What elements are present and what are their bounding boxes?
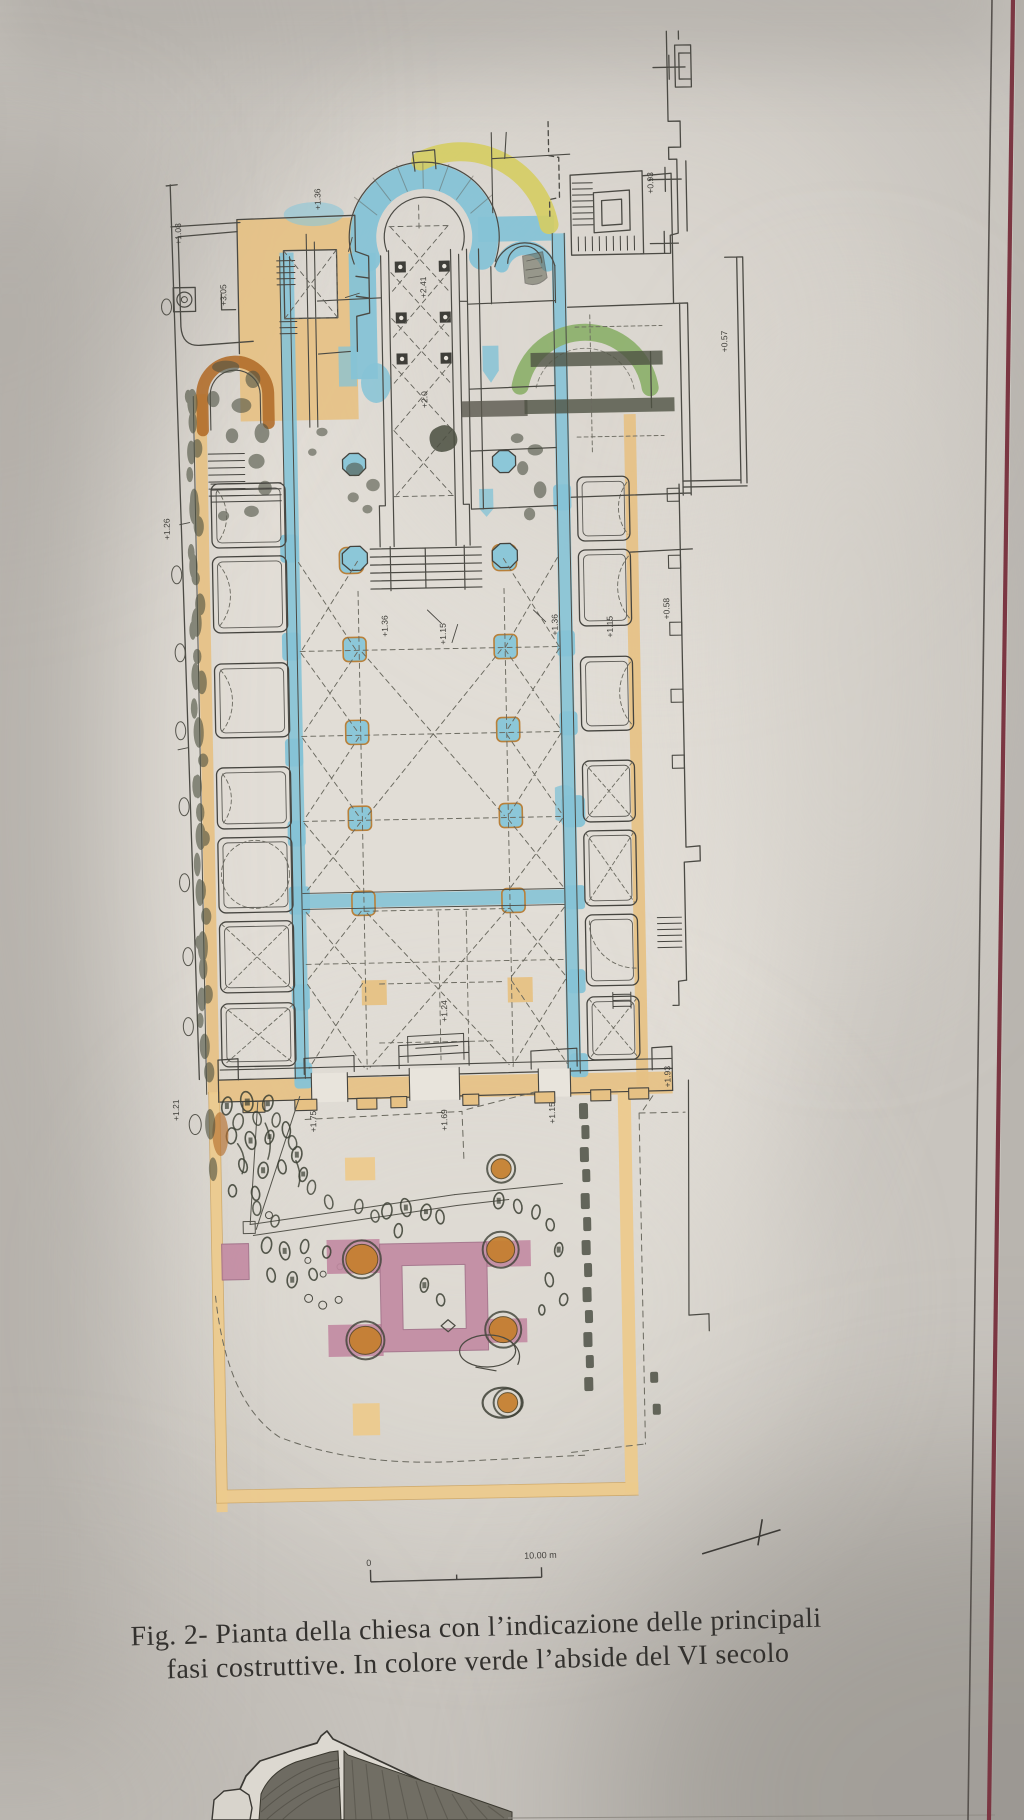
svg-text:+1.75: +1.75 <box>308 1110 318 1132</box>
svg-text:+1.36: +1.36 <box>312 188 322 210</box>
svg-text:+1.36: +1.36 <box>549 614 559 636</box>
svg-text:+1.36: +1.36 <box>379 615 389 637</box>
svg-text:+1.08: +1.08 <box>173 223 183 245</box>
svg-text:+0.57: +0.57 <box>719 330 729 352</box>
svg-text:+1.15: +1.15 <box>547 1102 557 1124</box>
svg-text:+2.41: +2.41 <box>418 276 428 298</box>
svg-text:0: 0 <box>366 1558 371 1568</box>
svg-text:+1.15: +1.15 <box>605 616 615 638</box>
svg-text:+3.05: +3.05 <box>218 284 228 306</box>
svg-text:10.00 m: 10.00 m <box>524 1550 557 1561</box>
svg-text:+1.21: +1.21 <box>171 1099 181 1121</box>
svg-text:+2.0: +2.0 <box>419 391 429 408</box>
svg-text:+0.93: +0.93 <box>645 172 655 194</box>
svg-text:+1.69: +1.69 <box>439 1109 449 1131</box>
svg-text:+0.58: +0.58 <box>661 598 671 620</box>
svg-text:+1.24: +1.24 <box>439 1000 449 1022</box>
svg-text:+1.26: +1.26 <box>162 518 172 540</box>
svg-text:+1.93: +1.93 <box>662 1066 672 1088</box>
svg-text:+1.15: +1.15 <box>438 623 448 645</box>
